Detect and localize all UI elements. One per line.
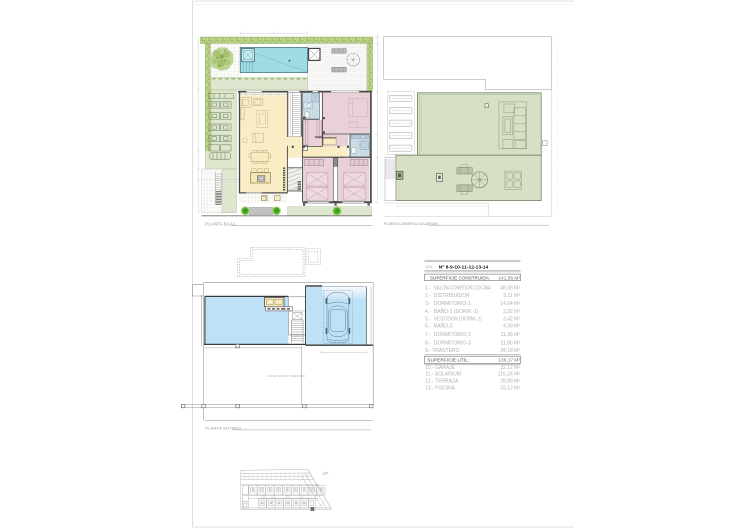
svg-text:13.- PISCINA: 13.- PISCINA xyxy=(425,385,456,391)
svg-text:3.-: 3.- xyxy=(425,301,431,307)
svg-text:11.- SOLARIUM: 11.- SOLARIUM xyxy=(425,372,461,378)
svg-text:VESTIDOR (DORM.-1): VESTIDOR (DORM.-1) xyxy=(434,317,482,323)
svg-text:BAÑO-1 (DORM.-1): BAÑO-1 (DORM.-1) xyxy=(434,308,479,315)
svg-text:3,42 M²: 3,42 M² xyxy=(503,317,520,323)
svg-text:LOCAL SIN USO DEFINIDO: LOCAL SIN USO DEFINIDO xyxy=(267,374,306,378)
svg-text:48,08 M²: 48,08 M² xyxy=(500,285,520,291)
svg-text:SALON-COMEDOR-COCINA: SALON-COMEDOR-COCINA xyxy=(434,285,492,291)
svg-text:DORMITORIO-1: DORMITORIO-1 xyxy=(434,301,471,307)
svg-text:5,11 M²: 5,11 M² xyxy=(503,293,520,299)
svg-text:28,88 M²: 28,88 M² xyxy=(500,378,520,384)
svg-text:7.-: 7.- xyxy=(425,332,431,338)
svg-text:141,56 M²: 141,56 M² xyxy=(498,275,520,281)
svg-text:136,17 M²: 136,17 M² xyxy=(498,358,520,364)
svg-text:SUPERFICIE UTIL:: SUPERFICIE UTIL: xyxy=(427,358,469,364)
svg-text:11,36 M²: 11,36 M² xyxy=(501,332,521,338)
svg-text:4,09 M²: 4,09 M² xyxy=(503,324,520,330)
svg-text:5.-: 5.- xyxy=(425,317,431,323)
svg-text:9.-: 9.- xyxy=(425,348,431,354)
svg-text:Nº 8-9-10-11-12-13-14: Nº 8-9-10-11-12-13-14 xyxy=(439,265,489,270)
svg-text:SUPERFICIE CONSTRUIDA:: SUPERFICIE CONSTRUIDA: xyxy=(430,275,490,281)
svg-text:1.-: 1.- xyxy=(425,285,431,291)
svg-text:BAÑO-2: BAÑO-2 xyxy=(434,323,453,330)
svg-text:DORMITORIO-3: DORMITORIO-3 xyxy=(434,340,471,346)
svg-text:32,12 M²: 32,12 M² xyxy=(500,365,520,371)
svg-text:3,92 M²: 3,92 M² xyxy=(503,309,520,315)
svg-text:14,64 M²: 14,64 M² xyxy=(500,301,520,307)
svg-text:TRASTERO: TRASTERO xyxy=(432,348,459,354)
svg-text:4.-: 4.- xyxy=(425,309,431,315)
svg-text:2.-: 2.- xyxy=(425,293,431,299)
svg-text:DORMITORIO-2: DORMITORIO-2 xyxy=(434,332,471,338)
svg-text:11,86 M²: 11,86 M² xyxy=(501,340,521,346)
svg-text:34,18 M²: 34,18 M² xyxy=(500,348,520,354)
svg-text:33,12 M²: 33,12 M² xyxy=(500,385,520,391)
svg-text:12.- TERRAZA: 12.- TERRAZA xyxy=(425,378,459,384)
svg-text:10.- GARAJE: 10.- GARAJE xyxy=(425,365,456,371)
svg-text:DISTRIBUIDOR: DISTRIBUIDOR xyxy=(434,293,470,299)
svg-text:116,24 M²: 116,24 M² xyxy=(498,372,520,378)
svg-text:8.-: 8.- xyxy=(425,340,431,346)
svg-text:VIV.: VIV. xyxy=(425,265,433,270)
svg-text:6.-: 6.- xyxy=(425,324,431,330)
